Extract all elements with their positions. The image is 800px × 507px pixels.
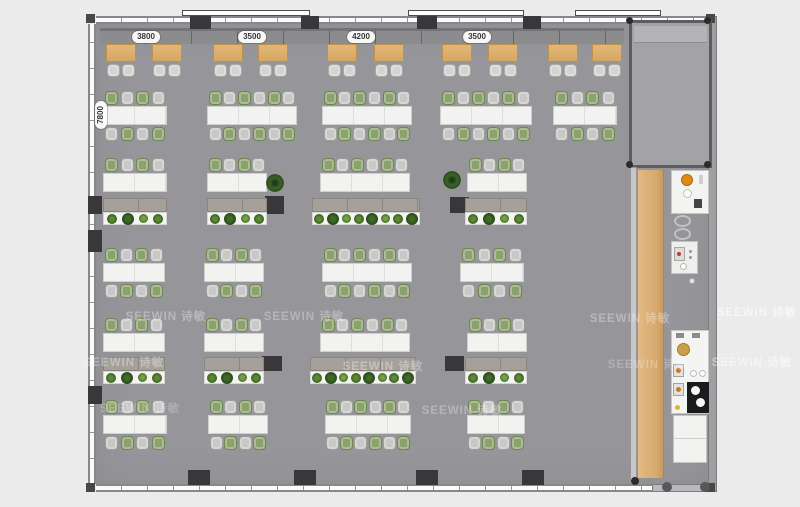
planter-box — [103, 212, 167, 225]
watermark: SEEWIN 诗敏 — [608, 356, 689, 372]
handle — [676, 333, 684, 338]
plant — [122, 213, 134, 225]
chair — [235, 248, 248, 262]
chair — [395, 158, 408, 172]
chair — [253, 127, 266, 141]
chair — [368, 248, 381, 262]
chair — [120, 284, 133, 298]
chair — [136, 158, 149, 172]
desk-table — [467, 173, 527, 192]
chair — [511, 400, 524, 414]
chair — [502, 127, 515, 141]
chair — [555, 91, 568, 105]
chair — [249, 318, 262, 332]
chair — [324, 91, 337, 105]
chair — [549, 64, 562, 77]
plant — [153, 214, 163, 224]
column — [190, 16, 211, 29]
chair — [214, 64, 227, 77]
red-dot — [677, 252, 681, 256]
plant — [366, 213, 378, 225]
chair — [457, 91, 470, 105]
chair — [238, 158, 251, 172]
plant — [251, 373, 261, 383]
chair — [239, 436, 252, 450]
chair — [383, 284, 396, 298]
desk-table — [325, 415, 411, 434]
chair — [322, 158, 335, 172]
column — [88, 230, 102, 252]
cup — [699, 370, 706, 377]
chair — [462, 284, 475, 298]
desk-table — [103, 173, 167, 192]
desk-table — [207, 173, 267, 192]
orange-bowl — [681, 174, 693, 186]
desk-table — [440, 106, 532, 125]
column — [188, 470, 210, 485]
chair — [252, 158, 265, 172]
chair — [368, 127, 381, 141]
chair — [209, 91, 222, 105]
chair — [375, 64, 388, 77]
wall-joint — [704, 17, 711, 24]
booth-table — [327, 44, 357, 62]
chair — [282, 127, 295, 141]
plant — [378, 373, 387, 382]
wall-joint — [704, 161, 711, 168]
chair — [472, 127, 485, 141]
chair — [511, 436, 524, 450]
chair — [564, 64, 577, 77]
chair — [497, 436, 510, 450]
column — [417, 16, 437, 29]
booth-table — [442, 44, 472, 62]
cup — [680, 263, 687, 270]
knob — [689, 256, 692, 259]
chair — [381, 158, 394, 172]
chair — [353, 248, 366, 262]
chair — [120, 248, 133, 262]
plant — [138, 373, 147, 382]
chair — [443, 64, 456, 77]
desk-table — [103, 333, 165, 352]
desk-table — [460, 263, 524, 282]
chair — [397, 248, 410, 262]
chair — [220, 248, 233, 262]
desk-table — [553, 106, 617, 125]
dish — [683, 189, 692, 198]
chair — [152, 127, 165, 141]
plant — [207, 373, 217, 383]
pot — [691, 386, 700, 395]
speaker — [694, 199, 702, 208]
chair — [442, 91, 455, 105]
chair — [259, 64, 272, 77]
chair — [338, 248, 351, 262]
chair — [368, 91, 381, 105]
plant — [393, 214, 403, 224]
chair — [206, 318, 219, 332]
chair — [517, 91, 530, 105]
chair — [224, 400, 237, 414]
booth-table — [548, 44, 578, 62]
chair — [383, 127, 396, 141]
chair — [136, 436, 149, 450]
chair — [136, 127, 149, 141]
column — [294, 470, 316, 485]
chair — [223, 91, 236, 105]
booth-table — [258, 44, 288, 62]
chair — [602, 127, 615, 141]
chair — [509, 248, 522, 262]
wall-joint — [631, 477, 639, 485]
furniture-layer: SEEWIN 诗敏SEEWIN 诗敏SEEWIN 诗敏SEEWIN 诗敏SEEW… — [0, 0, 800, 507]
booth-table — [374, 44, 404, 62]
chair — [383, 248, 396, 262]
chair — [493, 248, 506, 262]
desk-table — [103, 106, 167, 125]
chair — [253, 436, 266, 450]
chair — [482, 436, 495, 450]
plant — [406, 213, 418, 225]
chair — [383, 436, 396, 450]
plant — [500, 214, 509, 223]
small-item — [699, 175, 703, 184]
planter-box — [312, 212, 420, 225]
pot — [696, 398, 705, 407]
chair — [107, 64, 120, 77]
dimension-label: 3800 — [132, 31, 160, 43]
chair — [153, 64, 166, 77]
desk-table — [204, 333, 264, 352]
cup — [690, 370, 697, 377]
chair — [326, 400, 339, 414]
watermark: SEEWIN 诗敏 — [84, 354, 165, 370]
column — [88, 196, 102, 214]
planter-box — [207, 212, 267, 225]
potted-plant — [266, 174, 284, 192]
chair — [229, 64, 242, 77]
chair — [483, 158, 496, 172]
chair — [366, 158, 379, 172]
plant — [107, 214, 117, 224]
chair — [472, 91, 485, 105]
chair — [586, 91, 599, 105]
chair — [493, 284, 506, 298]
chair — [209, 127, 222, 141]
chair — [608, 64, 621, 77]
chair — [223, 127, 236, 141]
chair — [235, 318, 248, 332]
handle — [692, 333, 700, 338]
chair — [571, 91, 584, 105]
desk-table — [103, 415, 167, 434]
chair — [210, 436, 223, 450]
chair — [122, 64, 135, 77]
plant — [381, 214, 390, 223]
chair — [135, 284, 148, 298]
plant — [468, 214, 478, 224]
chair — [469, 318, 482, 332]
chair — [397, 400, 410, 414]
plant — [254, 214, 264, 224]
plant — [210, 214, 220, 224]
plant — [514, 214, 524, 224]
wall-joint — [626, 161, 633, 168]
column — [522, 470, 544, 485]
chair — [105, 318, 118, 332]
chair — [220, 318, 233, 332]
chair — [498, 318, 511, 332]
chair — [483, 318, 496, 332]
desk-table — [320, 333, 410, 352]
chair — [121, 158, 134, 172]
watermark: SEEWIN 诗敏 — [712, 354, 793, 370]
sideboard — [465, 198, 527, 212]
chair — [504, 64, 517, 77]
chair — [224, 436, 237, 450]
chair — [206, 284, 219, 298]
chair — [353, 127, 366, 141]
column — [301, 16, 319, 29]
booth-table — [152, 44, 182, 62]
wall-joint — [626, 17, 633, 24]
chair — [338, 284, 351, 298]
chair — [390, 64, 403, 77]
chair — [253, 400, 266, 414]
chair — [268, 91, 281, 105]
chair — [343, 64, 356, 77]
dimension-label: 4200 — [347, 31, 375, 43]
chair — [397, 127, 410, 141]
chair — [369, 400, 382, 414]
chair — [209, 158, 222, 172]
sideboard — [465, 357, 527, 371]
chair — [121, 436, 134, 450]
chair — [274, 64, 287, 77]
chair — [152, 158, 165, 172]
chair — [340, 436, 353, 450]
potted-plant — [443, 171, 461, 189]
sideboard — [312, 198, 420, 212]
chair — [238, 91, 251, 105]
booth-table — [106, 44, 136, 62]
desk-table — [467, 333, 527, 352]
plant — [121, 372, 133, 384]
white-cabinet — [673, 415, 707, 463]
chair — [249, 248, 262, 262]
plant — [351, 373, 361, 383]
chair — [324, 284, 337, 298]
plant — [483, 213, 495, 225]
small-circle — [689, 278, 695, 284]
chair — [397, 91, 410, 105]
chair — [338, 127, 351, 141]
chair — [517, 127, 530, 141]
chair — [509, 284, 522, 298]
column — [445, 356, 464, 371]
chair — [462, 248, 475, 262]
chair — [105, 91, 118, 105]
planter-box — [465, 212, 527, 225]
chair — [512, 318, 525, 332]
sideboard — [207, 198, 267, 212]
chair — [326, 436, 339, 450]
chair — [397, 284, 410, 298]
chair — [135, 248, 148, 262]
gold-sink — [677, 343, 690, 356]
desk-table — [208, 415, 268, 434]
chair — [249, 284, 262, 298]
chair — [468, 436, 481, 450]
cabinet-seam — [673, 438, 707, 439]
chair — [351, 158, 364, 172]
chair — [502, 91, 515, 105]
plant — [221, 372, 233, 384]
chair — [150, 284, 163, 298]
watermark: SEEWIN 诗敏 — [422, 402, 503, 418]
plant — [339, 373, 348, 382]
chair — [383, 91, 396, 105]
stool — [674, 215, 691, 227]
chair — [253, 91, 266, 105]
window-sill — [575, 10, 661, 16]
chair — [105, 436, 118, 450]
round-column — [700, 482, 710, 492]
chair — [340, 400, 353, 414]
sideboard — [103, 198, 167, 212]
chair — [235, 284, 248, 298]
chair — [458, 64, 471, 77]
chair — [328, 64, 341, 77]
chair — [152, 91, 165, 105]
watermark: SEEWIN 诗敏 — [126, 308, 207, 324]
plant — [139, 214, 148, 223]
planter-box — [465, 371, 527, 384]
chair — [397, 436, 410, 450]
plant — [354, 214, 364, 224]
chair — [512, 158, 525, 172]
column — [416, 470, 438, 485]
chair — [555, 127, 568, 141]
chair — [489, 64, 502, 77]
chair — [442, 127, 455, 141]
column — [523, 16, 541, 29]
chair — [105, 284, 118, 298]
chair — [395, 318, 408, 332]
plant — [483, 372, 495, 384]
plant — [389, 373, 399, 383]
chair — [368, 284, 381, 298]
chair — [324, 127, 337, 141]
dimension-label: 3500 — [238, 31, 266, 43]
chair — [136, 91, 149, 105]
plant — [325, 372, 337, 384]
chair — [354, 436, 367, 450]
chair — [487, 127, 500, 141]
dimension-label: 3500 — [463, 31, 491, 43]
booth-table — [592, 44, 622, 62]
chair — [239, 400, 252, 414]
chair — [487, 91, 500, 105]
chair — [121, 91, 134, 105]
chair — [105, 127, 118, 141]
booth-table — [488, 44, 518, 62]
flame-dot — [676, 387, 681, 392]
chair — [353, 91, 366, 105]
chair — [282, 91, 295, 105]
desk-table — [322, 263, 412, 282]
chair — [121, 127, 134, 141]
watermark: SEEWIN 诗敏 — [100, 400, 181, 416]
chair — [210, 400, 223, 414]
chair — [324, 248, 337, 262]
plant — [342, 214, 351, 223]
desk-table — [207, 106, 297, 125]
chair — [381, 318, 394, 332]
watermark: SEEWIN 诗敏 — [590, 310, 671, 326]
planter-box — [103, 371, 165, 384]
column — [265, 196, 284, 214]
planter-box — [204, 371, 264, 384]
plant — [241, 214, 250, 223]
sideboard — [204, 357, 264, 371]
chair — [593, 64, 606, 77]
plant — [314, 214, 324, 224]
chair — [457, 127, 470, 141]
chair — [366, 318, 379, 332]
plant — [327, 213, 339, 225]
desk-table — [322, 106, 412, 125]
chair — [152, 436, 165, 450]
chair — [353, 284, 366, 298]
plant — [152, 373, 162, 383]
round-column — [662, 482, 672, 492]
chair — [105, 248, 118, 262]
watermark: SEEWIN 诗敏 — [264, 308, 345, 324]
watermark: SEEWIN 诗敏 — [343, 358, 424, 374]
chair — [336, 158, 349, 172]
yellow-dot — [675, 405, 680, 410]
chair — [498, 158, 511, 172]
knob — [689, 250, 692, 253]
chair — [478, 248, 491, 262]
chair — [571, 127, 584, 141]
plant — [224, 213, 236, 225]
chair — [586, 127, 599, 141]
chair — [383, 400, 396, 414]
chair — [238, 127, 251, 141]
plant — [514, 373, 524, 383]
chair — [469, 158, 482, 172]
chair — [150, 248, 163, 262]
chair — [602, 91, 615, 105]
chair — [105, 158, 118, 172]
plant — [500, 373, 509, 382]
chair — [268, 127, 281, 141]
chair — [206, 248, 219, 262]
floor-plan-scene: SEEWIN 诗敏SEEWIN 诗敏SEEWIN 诗敏SEEWIN 诗敏SEEW… — [0, 0, 800, 507]
desk-table — [204, 263, 264, 282]
plant — [238, 373, 247, 382]
desk-table — [103, 263, 165, 282]
booth-table — [213, 44, 243, 62]
chair — [168, 64, 181, 77]
column — [262, 356, 282, 371]
chair — [354, 400, 367, 414]
dimension-label: 7800 — [95, 101, 107, 129]
plant — [468, 373, 478, 383]
